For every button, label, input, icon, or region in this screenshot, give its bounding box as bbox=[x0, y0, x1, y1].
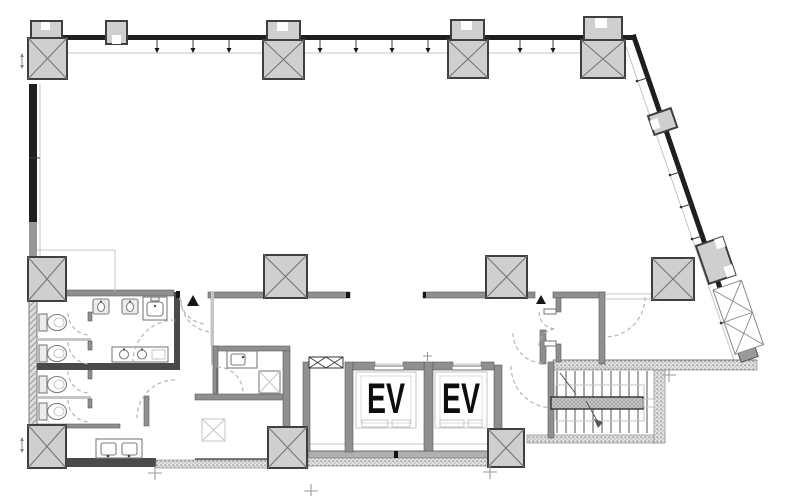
elevator-label: EV bbox=[367, 375, 405, 423]
west-wall-upper bbox=[29, 84, 37, 222]
wc-fixture-2 bbox=[39, 345, 67, 362]
ev1-west-wall bbox=[345, 362, 353, 452]
ev2-door-sill bbox=[452, 366, 482, 370]
survey-cross-2 bbox=[304, 484, 318, 496]
machine-room-west-wall-upper bbox=[556, 298, 561, 312]
machine-room-east-wall bbox=[599, 292, 605, 364]
service-room-south-wall bbox=[195, 394, 289, 400]
ev2-head-wall-right bbox=[481, 362, 494, 370]
column-t1 bbox=[28, 38, 67, 79]
ev2-east-wall bbox=[494, 365, 502, 432]
stall-door-2 bbox=[68, 342, 90, 364]
machine-room-west-wall-lower bbox=[556, 344, 561, 362]
stair-entry-door bbox=[511, 366, 553, 408]
north-curtain-wall bbox=[45, 35, 636, 40]
floor-hatch bbox=[202, 419, 225, 441]
stall-partition-1 bbox=[37, 338, 91, 341]
wc-fixture-4 bbox=[39, 403, 67, 420]
wall-end-cap-2 bbox=[346, 292, 350, 298]
wc-fixture-1 bbox=[39, 314, 67, 331]
toilet-north-wall bbox=[50, 290, 174, 296]
ev1-head-wall-right bbox=[403, 362, 424, 370]
column-t4 bbox=[581, 40, 625, 78]
braced-lintel bbox=[309, 357, 343, 368]
toilet-fixtures bbox=[39, 297, 280, 458]
column-t3 bbox=[448, 40, 488, 78]
column-b2 bbox=[268, 427, 307, 468]
elevator-shafts: EV EV bbox=[356, 366, 487, 428]
stall-stub-2 bbox=[88, 341, 92, 350]
hall-stub-door bbox=[513, 333, 543, 363]
stair-landing bbox=[551, 397, 643, 409]
stall-door-1 bbox=[68, 313, 90, 335]
toilet-duct-wall bbox=[144, 396, 149, 426]
vanity-counter-lower bbox=[96, 439, 142, 458]
axis-arrow-top bbox=[20, 53, 24, 69]
slant-pier-1 bbox=[648, 108, 677, 135]
urinal-1 bbox=[93, 299, 109, 314]
ev1-head-wall-left bbox=[353, 362, 375, 370]
ev1-door-sill bbox=[374, 366, 404, 370]
east-wing-door bbox=[605, 297, 645, 337]
wall-end-cap-1 bbox=[176, 291, 180, 298]
column-m3 bbox=[486, 256, 527, 298]
urinal-2 bbox=[122, 299, 138, 314]
slant-pier-2 bbox=[696, 237, 735, 284]
stall-partition-2 bbox=[37, 396, 91, 399]
survey-cross-5 bbox=[423, 352, 432, 361]
floor-plan-drawing: EV EV bbox=[0, 0, 787, 496]
west-wall-segment bbox=[29, 222, 37, 258]
service-room-door bbox=[217, 367, 243, 393]
hall-stub-wall bbox=[540, 330, 546, 364]
south-wall-joint bbox=[394, 451, 398, 458]
west-wall-lower bbox=[29, 300, 37, 425]
louver-panel bbox=[713, 280, 764, 354]
north-ticks bbox=[155, 40, 556, 53]
floor-plan-page: EV EV bbox=[0, 0, 787, 496]
stair-break-line bbox=[560, 373, 576, 394]
hand-sink bbox=[143, 297, 167, 320]
toilet-divider-wall bbox=[37, 363, 180, 370]
wc-fixture-3 bbox=[39, 376, 67, 393]
duct-shaft bbox=[259, 371, 280, 393]
stall-stub-3 bbox=[88, 370, 92, 379]
entry-triangle-marker-2 bbox=[536, 295, 546, 304]
south-wall-toilet bbox=[66, 458, 156, 467]
stall-door-3 bbox=[68, 371, 90, 393]
mullion-ticks bbox=[29, 40, 731, 324]
column-m1 bbox=[28, 257, 66, 301]
ev2-head-wall-left bbox=[433, 362, 453, 370]
service-sink bbox=[227, 351, 257, 368]
stair-landing-ext bbox=[643, 399, 654, 407]
machine-room-north-wall bbox=[553, 292, 605, 298]
axis-arrow-bottom bbox=[20, 437, 24, 453]
toilet-east-wall bbox=[174, 292, 180, 365]
stall-stub-4 bbox=[88, 399, 92, 408]
elevator-1: EV bbox=[356, 366, 416, 428]
service-room-north-wall bbox=[213, 346, 290, 351]
column-b3 bbox=[488, 429, 524, 467]
staircase bbox=[551, 368, 654, 433]
ev-divider-wall bbox=[424, 362, 433, 451]
elevator-label: EV bbox=[442, 375, 480, 423]
entry-triangle-marker-1 bbox=[187, 295, 199, 306]
column-t2 bbox=[263, 40, 304, 79]
east-wall-stair bbox=[654, 370, 665, 443]
wall-end-cap-3 bbox=[423, 292, 426, 298]
stall-door-4 bbox=[68, 400, 90, 422]
east-glazing-line bbox=[624, 41, 734, 360]
lower-room-door bbox=[137, 380, 175, 418]
south-wall-ev-hatch bbox=[308, 458, 488, 466]
elevator-2: EV bbox=[435, 366, 487, 428]
column-m2 bbox=[264, 255, 307, 298]
column-m4 bbox=[652, 258, 694, 300]
vanity-counter-upper bbox=[112, 347, 168, 362]
stall-stub-1 bbox=[88, 312, 92, 321]
column-b1 bbox=[28, 425, 66, 468]
